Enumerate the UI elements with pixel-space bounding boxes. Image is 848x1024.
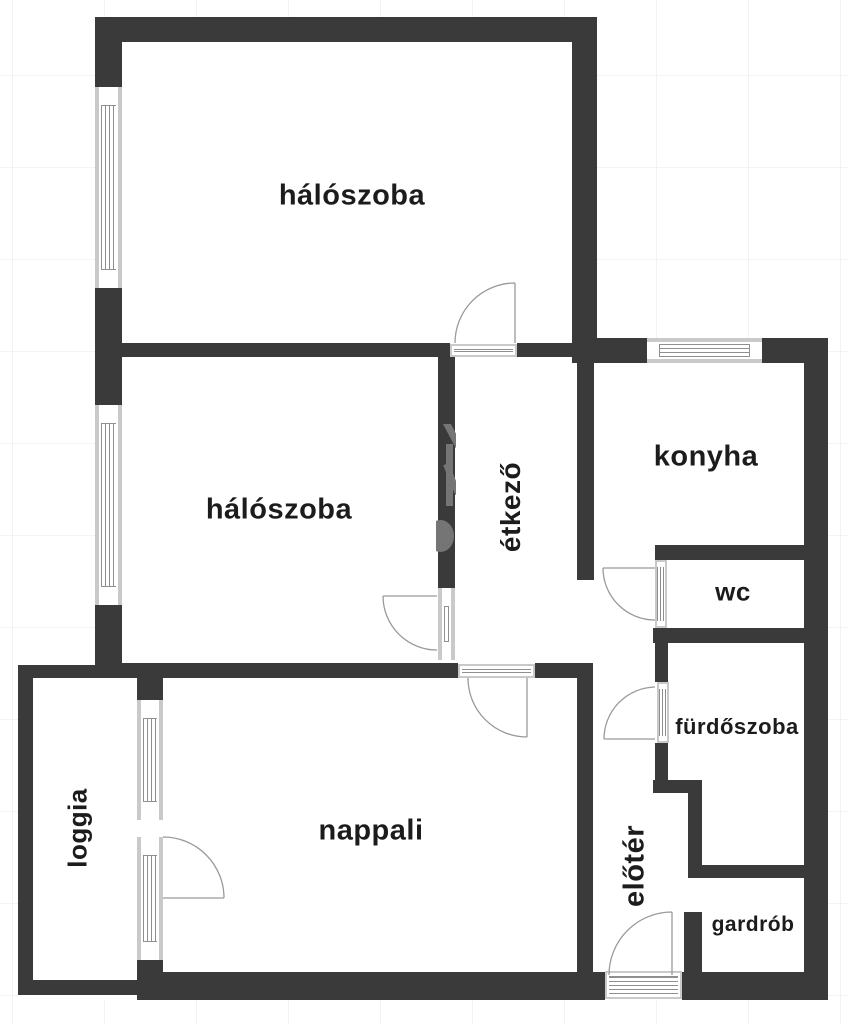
floor-plan: hálószoba hálószoba étkező konyha wc für… <box>0 0 848 1024</box>
door-loggia <box>163 837 224 898</box>
room-label-wc: wc <box>715 577 751 608</box>
door-dining-livingroom <box>468 678 527 737</box>
door-bedroom2 <box>383 596 437 650</box>
door-bedroom1 <box>455 283 515 343</box>
room-label-gardrob: gardrób <box>712 913 795 937</box>
room-label-furdoszoba: fürdőszoba <box>675 714 799 740</box>
room-label-etkezo: étkező <box>495 462 527 552</box>
room-label-konyha: konyha <box>654 441 759 474</box>
room-label-loggia: loggia <box>63 788 94 868</box>
room-label-haloszoba-top: hálószoba <box>279 180 425 213</box>
door-entrance <box>609 912 672 975</box>
watermark-icon <box>436 424 456 564</box>
room-label-haloszoba-mid: hálószoba <box>206 494 352 527</box>
door-wc <box>603 568 655 620</box>
room-label-nappali: nappali <box>318 815 423 848</box>
door-swing-overlay <box>0 0 848 1024</box>
door-bathroom <box>604 687 655 739</box>
room-label-eloter: előtér <box>619 825 652 907</box>
